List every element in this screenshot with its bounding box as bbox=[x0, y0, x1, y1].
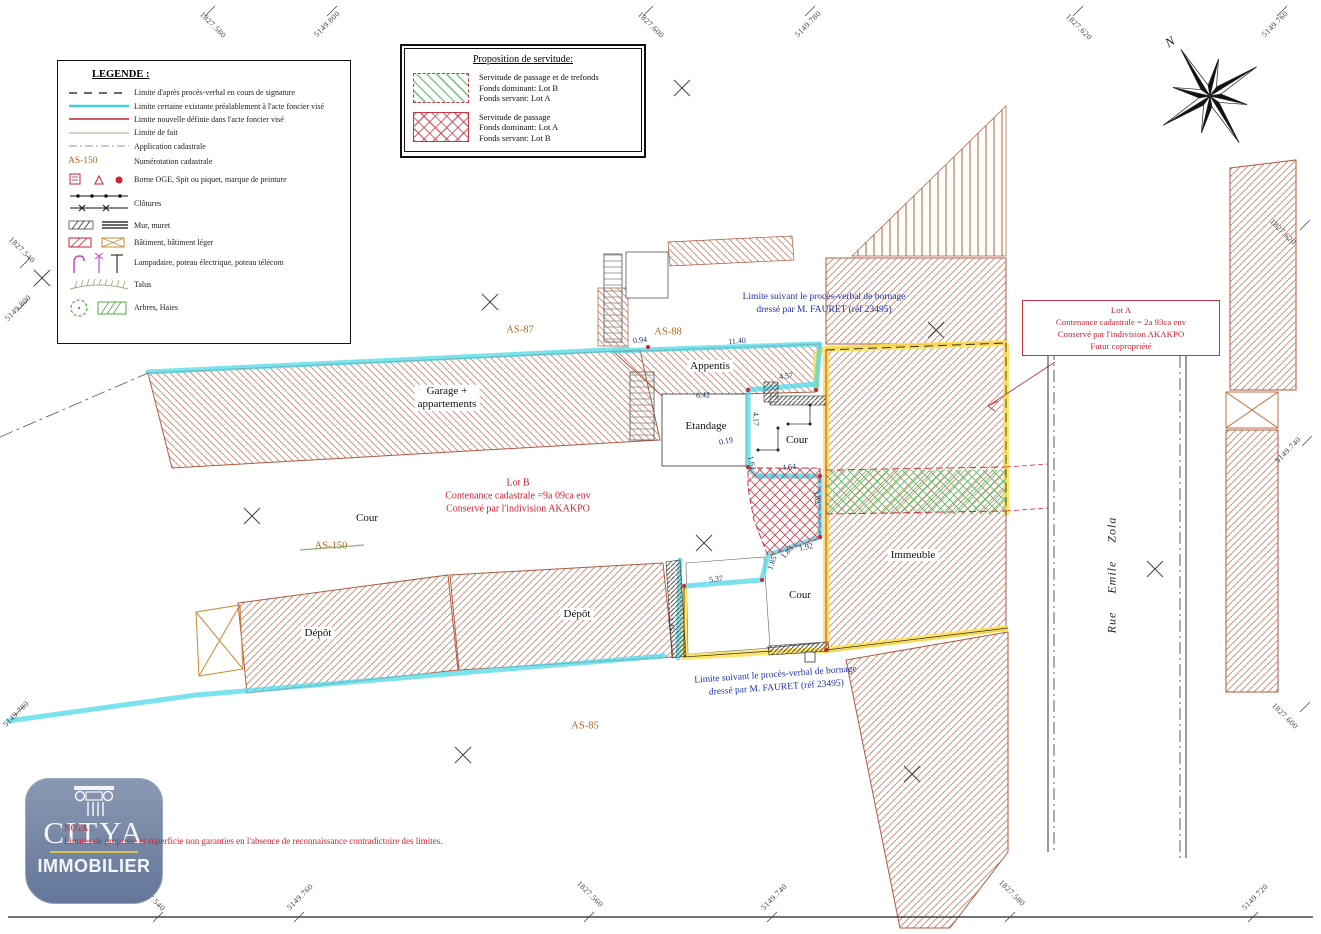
lot-b-area: Contenance cadastrale =9a 09ca env bbox=[445, 490, 591, 503]
legend-row: Clôtures bbox=[68, 190, 346, 217]
dimension-label: 11.40 bbox=[728, 336, 746, 346]
logo-subtitle-text: IMMOBILIER bbox=[38, 856, 151, 877]
courtyard-label: Cour bbox=[786, 434, 808, 446]
legend-label: Bâtiment, bâtiment léger bbox=[134, 238, 213, 247]
servitude-title: Proposition de servitude: bbox=[413, 54, 633, 65]
legend-row: Limite nouvelle définie dans l'acte fonc… bbox=[68, 113, 346, 126]
dimension-label: 4.17 bbox=[751, 412, 761, 426]
borne-square bbox=[805, 652, 815, 662]
compass-rose bbox=[1134, 20, 1286, 172]
legend-row: Limite d'après procès-verbal en cours de… bbox=[68, 86, 346, 99]
talus-icon bbox=[68, 277, 134, 293]
light-building-symbol-east bbox=[1226, 392, 1278, 428]
lot-a-title: Lot A bbox=[1025, 304, 1217, 316]
legend-label: Limite certaine existante préalablement … bbox=[134, 102, 324, 111]
cyan-limit-line-icon bbox=[68, 102, 134, 110]
wall-icon bbox=[68, 219, 134, 231]
legend-row: Borne OGE, Spit ou piquet, marque de pei… bbox=[68, 170, 346, 190]
trees-hedge-icon bbox=[68, 297, 134, 319]
dashed-limit-line-icon bbox=[68, 89, 134, 97]
legend-row: Limite de fait bbox=[68, 126, 346, 139]
lot-a-description-box: Lot A Contenance cadastrale = 2a 93ca en… bbox=[1022, 300, 1220, 356]
dimension-label: 5.37 bbox=[709, 574, 724, 585]
bornage-note-top: Limite suivant le procès-verbal de borna… bbox=[743, 291, 906, 317]
servitude-line: Servitude de passage bbox=[479, 112, 558, 123]
servitude-trefonds-area bbox=[826, 470, 1006, 514]
legend-box: LEGENDE : Limite d'après procès-verbal e… bbox=[57, 60, 351, 344]
cadastral-plan-page: N 1827.580 5149.800 1827.600 5149.780 18… bbox=[0, 0, 1321, 934]
red-limit-line-icon bbox=[68, 115, 134, 123]
courtyard-label: Cour bbox=[356, 512, 378, 524]
dimension-label: 4.57 bbox=[779, 371, 794, 382]
parcel-number-sample: AS-150 bbox=[68, 156, 134, 166]
dimension-label: 6.42 bbox=[696, 390, 710, 400]
green-limit-line-icon bbox=[68, 129, 134, 137]
lot-b-owner: Conservé par l'indivision AKAKPO bbox=[445, 503, 591, 516]
servitude-line: Servitude de passage et de trefonds bbox=[479, 72, 599, 83]
column-capital-icon bbox=[71, 784, 117, 818]
building-label-garage: Garage + appartements bbox=[415, 385, 480, 411]
lot-a-future: Futur copropriété bbox=[1025, 340, 1217, 352]
legend-row: Bâtiment, bâtiment léger bbox=[68, 234, 346, 251]
legend-label: Borne OGE, Spit ou piquet, marque de pei… bbox=[134, 175, 287, 184]
legend-label: Limite de fait bbox=[134, 128, 178, 137]
lot-a-owner: Conservé par l'indivision AKAKPO bbox=[1025, 328, 1217, 340]
nota-disclaimer: NOTA : Limites de propriété et superfici… bbox=[64, 822, 442, 848]
servitude-proposal-inner: Proposition de servitude: Servitude de p… bbox=[404, 48, 642, 152]
lot-a-area: Contenance cadastrale = 2a 93ca env bbox=[1025, 316, 1217, 328]
dimension-label: 0.94 bbox=[633, 335, 648, 345]
legend-row: Lampadaire, poteau électrique, poteau té… bbox=[68, 251, 346, 275]
servitude-line: Fonds servant: Lot A bbox=[479, 93, 599, 104]
servitude-line: Fonds servant: Lot B bbox=[479, 133, 558, 144]
servitude-line: Fonds dominant: Lot B bbox=[479, 83, 599, 94]
light-building-symbol bbox=[196, 605, 243, 676]
parcel-number-as85: AS-85 bbox=[571, 721, 598, 732]
legend-label: Application cadastrale bbox=[134, 142, 206, 151]
servitude-item: Servitude de passage Fonds dominant: Lot… bbox=[413, 112, 633, 144]
dashdot-line-icon bbox=[68, 142, 134, 150]
parcel-number-as88: AS-88 bbox=[654, 327, 681, 338]
lot-b-title: Lot B bbox=[445, 477, 591, 490]
legend-label: Lampadaire, poteau électrique, poteau té… bbox=[134, 258, 284, 267]
building-icon bbox=[68, 236, 134, 249]
servitude-line: Fonds dominant: Lot A bbox=[479, 122, 558, 133]
building-label-garage-line2: appartements bbox=[418, 398, 477, 411]
building-label-appentis: Appentis bbox=[687, 360, 733, 372]
lot-b-description: Lot B Contenance cadastrale =9a 09ca env… bbox=[445, 477, 591, 516]
legend-row: Arbres, Haies bbox=[68, 295, 346, 321]
dimension-label: 4.45 bbox=[666, 617, 677, 632]
building-label-depot: Dépôt bbox=[302, 627, 335, 639]
street-name-label: Rue Emile Zola bbox=[1105, 517, 1120, 634]
legend-row: Mur, muret bbox=[68, 217, 346, 234]
legend-title: LEGENDE : bbox=[92, 69, 346, 80]
legend-row: AS-150 Numérotation cadastrale bbox=[68, 153, 346, 170]
legend-label: Arbres, Haies bbox=[134, 303, 178, 312]
legend-label: Mur, muret bbox=[134, 221, 170, 230]
legend-label: Clôtures bbox=[134, 199, 161, 208]
bornage-note-line1: Limite suivant le procès-verbal de borna… bbox=[743, 291, 906, 304]
passage-hatch-swatch bbox=[413, 112, 469, 142]
legend-row: Application cadastrale bbox=[68, 140, 346, 153]
servitude-item: Servitude de passage et de trefonds Fond… bbox=[413, 72, 633, 104]
nota-title: NOTA : bbox=[64, 822, 442, 835]
building-label-depot: Dépôt bbox=[561, 608, 594, 620]
legend-row: Talus bbox=[68, 275, 346, 295]
streetlight-poles-icon bbox=[68, 252, 134, 274]
dimension-label: 4.64 bbox=[782, 462, 797, 472]
building-label-immeuble: Immeuble bbox=[888, 549, 939, 561]
borne-symbols-icon bbox=[68, 172, 134, 187]
bornage-note-line2: dressé par M. FAURET (réf 23495) bbox=[743, 304, 906, 317]
legend-label: Limite nouvelle définie dans l'acte fonc… bbox=[134, 115, 284, 124]
legend-row: Limite certaine existante préalablement … bbox=[68, 99, 346, 112]
parcel-number-as150: AS-150 bbox=[315, 541, 348, 552]
legend-label: Talus bbox=[134, 280, 151, 289]
servitude-proposal-box: Proposition de servitude: Servitude de p… bbox=[400, 44, 646, 158]
courtyard-label: Cour bbox=[789, 589, 811, 601]
building-label-garage-line1: Garage + bbox=[418, 385, 477, 398]
fence-icon bbox=[68, 191, 134, 215]
trefonds-hatch-swatch bbox=[413, 73, 469, 103]
building-label-etandage: Etandage bbox=[686, 420, 727, 432]
legend-label: Numérotation cadastrale bbox=[134, 157, 212, 166]
logo-divider bbox=[50, 851, 138, 853]
legend-label: Limite d'après procès-verbal en cours de… bbox=[134, 88, 295, 97]
nota-text: Limites de propriété et superficie non g… bbox=[64, 835, 442, 848]
parcel-number-as87: AS-87 bbox=[506, 325, 533, 336]
